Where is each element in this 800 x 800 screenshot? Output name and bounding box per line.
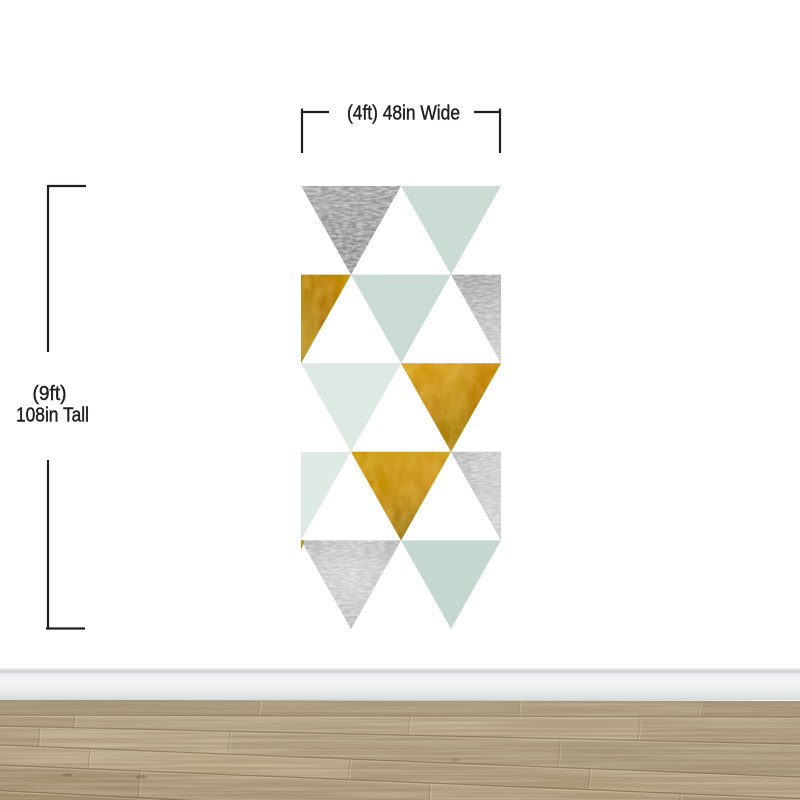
svg-text:(9ft): (9ft) (33, 382, 67, 405)
svg-text:(4ft) 48in Wide: (4ft) 48in Wide (347, 102, 460, 125)
svg-text:108in Tall: 108in Tall (16, 404, 89, 427)
